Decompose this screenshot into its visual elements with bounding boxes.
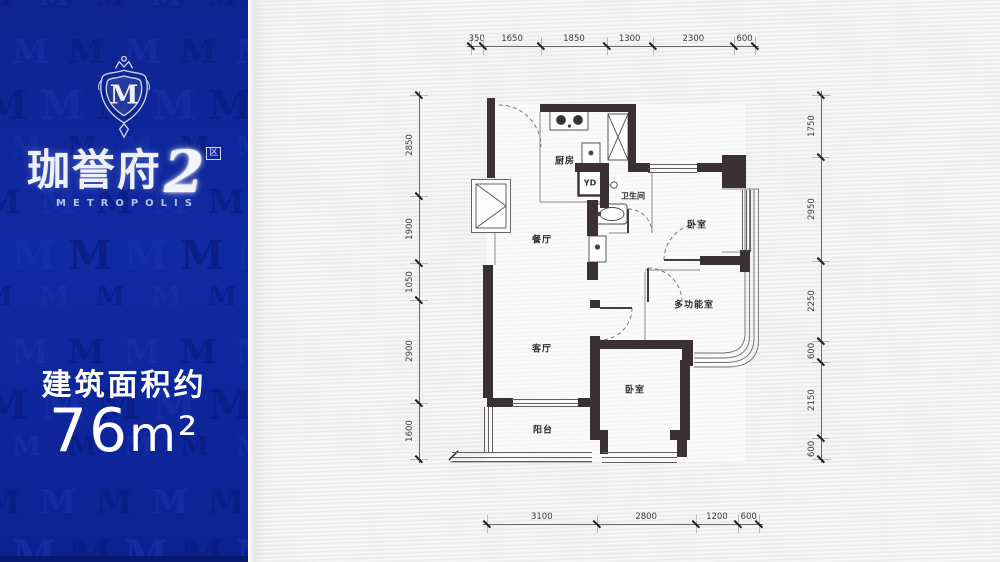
wall-bedroom1-top	[697, 163, 724, 172]
wall-living-bedroom2	[590, 336, 600, 440]
dim-line	[483, 524, 763, 525]
dim-value-right: 2950	[807, 198, 817, 220]
toilet-drain	[595, 245, 599, 249]
dim-value-right: 600	[807, 441, 817, 457]
wall-living-bottom-left	[487, 398, 513, 407]
window-balcony-left	[484, 407, 493, 453]
window-living-bottom	[512, 399, 578, 407]
room-label-multi: 多功能室	[674, 298, 714, 311]
window-bedroom1-top	[648, 164, 697, 173]
dim-value-top: 1300	[619, 34, 641, 44]
stove-knob	[568, 125, 570, 127]
room-label-dining: 餐厅	[532, 233, 552, 246]
wall-yd-right	[600, 170, 609, 208]
dim-value-top: 1650	[501, 34, 523, 44]
dim-value-top: 1850	[563, 34, 585, 44]
room-label-balcony: 阳台	[533, 423, 553, 436]
dim-value-left: 1050	[405, 271, 415, 293]
window-bedroom2-bottom	[602, 452, 677, 463]
floor-plan: 厨房 卫生间 卧室 多功能室 餐厅 客厅 卧室 阳台 YD 3501650185…	[0, 0, 1000, 562]
dim-line	[821, 91, 822, 463]
room-label-kitchen: 厨房	[555, 154, 575, 167]
wall-bedroom2-jamb-left	[600, 430, 608, 454]
dim-value-right: 600	[807, 343, 817, 359]
washbasin-symbol	[611, 182, 617, 188]
wall-corridor-left-upper	[587, 200, 598, 236]
wall-bedroom2-right	[680, 360, 690, 438]
wall-bedroom2-top	[593, 340, 693, 349]
wall-entry-left	[487, 98, 495, 178]
page: MMMMMMMMMMMMMMMMMMMMMMMMMMMMMMMMMMMMMMMM…	[0, 0, 1000, 562]
dim-value-left: 1900	[405, 219, 415, 241]
dim-value-bottom: 1200	[706, 512, 728, 522]
wall-bedroom1-bottom	[700, 256, 748, 265]
plan-drawing-overlay	[0, 0, 1000, 562]
wall-living-stub	[590, 300, 600, 308]
wall-kitchen-top	[540, 104, 636, 112]
stove-burner	[557, 116, 566, 125]
room-label-bedroom1: 卧室	[687, 218, 707, 231]
dim-value-right: 2150	[807, 389, 817, 411]
dim-value-bottom: 2800	[635, 512, 657, 522]
window-bedroom1-right	[742, 190, 751, 252]
wall-corner-topright	[722, 155, 746, 188]
wall-bedroom2-jamb-right	[677, 430, 687, 457]
sink-drain	[589, 151, 593, 155]
dim-value-top: 2300	[683, 34, 705, 44]
dim-value-left: 1600	[405, 420, 415, 442]
dim-value-right: 1750	[807, 115, 817, 137]
wall-bath-top	[628, 163, 650, 172]
dim-line	[419, 91, 420, 463]
wardrobe-symbol	[472, 180, 511, 233]
wall-shaft-right	[628, 112, 636, 164]
room-label-yd: YD	[584, 179, 596, 188]
dim-value-right: 2250	[807, 290, 817, 312]
dim-line	[467, 46, 760, 47]
dim-value-bottom: 3100	[531, 512, 553, 522]
room-label-bedroom2: 卧室	[625, 383, 645, 396]
room-label-bath: 卫生间	[621, 191, 645, 202]
dim-value-left: 2900	[405, 341, 415, 363]
wall-left-exterior	[483, 265, 493, 398]
wall-living-bottom-right	[578, 398, 592, 407]
stove-burner	[574, 116, 583, 125]
wall-corridor-left-lower	[587, 262, 598, 280]
room-label-living: 客厅	[532, 342, 552, 355]
dim-value-left: 2850	[405, 135, 415, 157]
window-balcony-bottom	[452, 452, 592, 462]
